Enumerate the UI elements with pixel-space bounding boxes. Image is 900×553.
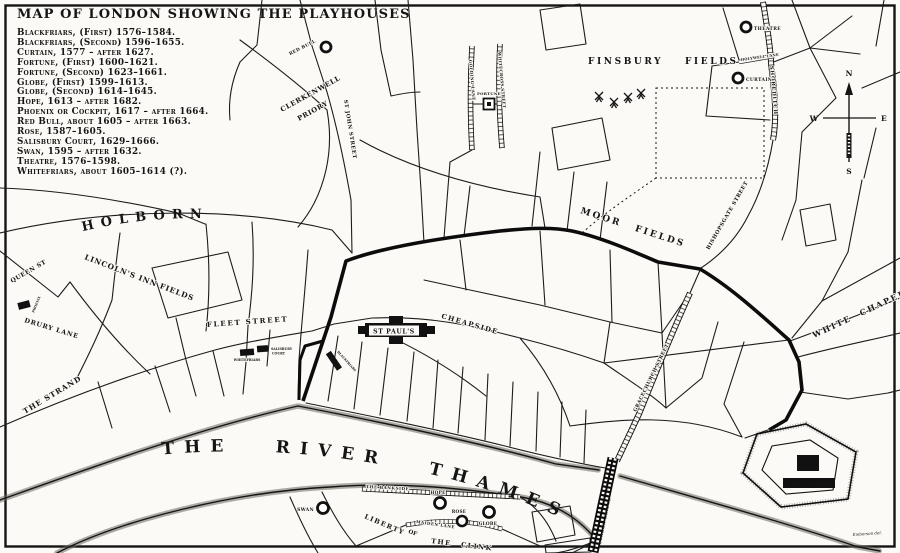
- label-fortune: FORTUNE: [477, 91, 501, 96]
- label-of: OF: [407, 529, 417, 537]
- label-salisbury-court: COURT: [272, 352, 286, 356]
- label-salisbury: SALISBURY: [271, 347, 293, 351]
- label-st-pauls: ST PAUL'S: [373, 329, 415, 336]
- label-white-chapel: WHITE CHAPEL: [810, 288, 900, 341]
- legend: MAP OF LONDON SHOWING THE PLAYHOUSES Bla…: [17, 7, 279, 178]
- playhouse-theatre: THEATRE: [741, 22, 781, 32]
- playhouse-salisbury-court: SALISBURY COURT: [257, 345, 293, 355]
- playhouse-globe: GLOBE: [479, 507, 497, 527]
- label-swan: SWAN: [297, 508, 314, 513]
- compass-e: E: [881, 114, 887, 123]
- label-hope: HOPE: [430, 490, 445, 495]
- label-globe: GLOBE: [479, 521, 497, 526]
- label-holborn: HOLBORN: [80, 207, 209, 235]
- compass-rose: N S W E: [809, 69, 887, 176]
- playhouse-curtain: CURTAIN: [733, 73, 772, 83]
- label-shoreditch: SHOREDITCH: [768, 66, 778, 116]
- map-title: MAP OF LONDON SHOWING THE PLAYHOUSES: [17, 7, 279, 22]
- hatched-streets: [362, 2, 775, 529]
- label-lincolns-inn-fields: LINCOLN'S INN FIELDS: [83, 252, 195, 302]
- label-drury-lane: DRURY LANE: [23, 316, 79, 340]
- map-page: LONDON BRIDGE THE TOWER ST PAUL'S: [0, 0, 900, 553]
- label-bishopsgate-street: BISHOPSGATE STREET: [706, 180, 750, 251]
- playhouse-swan: SWAN: [297, 503, 328, 514]
- windmill-icons: [595, 89, 645, 108]
- label-blackfriars: BLACKFRIARS: [336, 350, 357, 373]
- signature: Emberson del.: [851, 530, 882, 537]
- playhouse-whitefriars: WHITEFRIARS: [233, 349, 261, 362]
- label-st-john-street: ST JOHN STREET: [342, 99, 357, 159]
- label-the-clink: THE CLINK: [431, 537, 493, 552]
- playhouse-phoenix: PHOENIX: [17, 295, 41, 313]
- compass-s: S: [846, 167, 851, 176]
- compass-n: N: [846, 69, 853, 78]
- label-moor-fields: MOOR FIELDS: [579, 206, 686, 249]
- label-the-strand: THE STRAND: [21, 374, 83, 416]
- playhouse-blackfriars: BLACKFRIARS: [326, 350, 358, 373]
- label-rose: ROSE: [452, 509, 467, 514]
- tower-of-london: THE TOWER: [743, 424, 856, 507]
- label-theatre: THEATRE: [754, 27, 781, 32]
- label-curtain: CURTAIN: [746, 78, 772, 83]
- compass-w: W: [809, 114, 819, 123]
- label-phoenix: PHOENIX: [31, 295, 41, 313]
- legend-item: Whitefriars, about 1605–1614 (?).: [17, 168, 279, 178]
- label-whitefriars: WHITEFRIARS: [233, 358, 261, 362]
- label-finsbury-fields: FINSBURY FIELDS: [588, 57, 739, 67]
- label-the-tower: THE TOWER: [786, 482, 833, 488]
- playhouse-red-bull: RED BULL: [289, 39, 331, 57]
- label-cheapside: CHEAPSIDE: [440, 312, 499, 336]
- st-pauls-cathedral: ST PAUL'S: [358, 316, 435, 344]
- playhouse-hope: HOPE: [430, 490, 445, 509]
- label-liberty: LIBERTY: [363, 512, 406, 536]
